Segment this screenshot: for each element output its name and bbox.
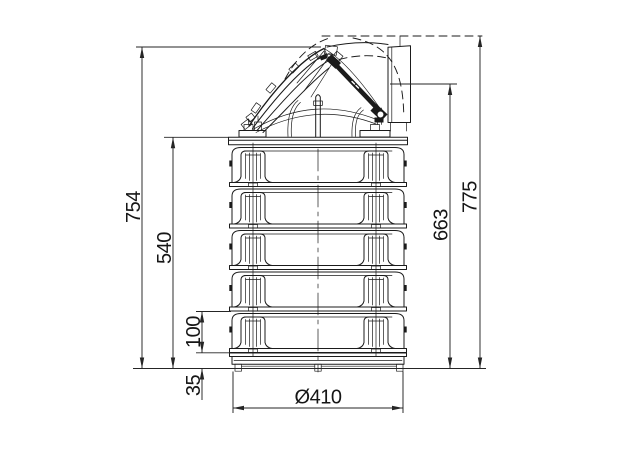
dimension-663-label: 663 [431, 209, 453, 241]
technical-drawing-page: 754 540 100 35 Ø410 [0, 0, 624, 460]
tank-elevation-drawing: 754 540 100 35 Ø410 [0, 0, 624, 460]
dimension-754: 754 [123, 47, 321, 369]
dimension-754-label: 754 [123, 191, 145, 223]
dimension-35: 35 [183, 369, 205, 401]
dimension-410: Ø410 [233, 372, 403, 414]
dimension-100: 100 [183, 312, 231, 353]
dimension-775: 775 [460, 36, 483, 369]
gas-strut [326, 54, 388, 121]
dimension-775-label: 775 [460, 181, 482, 213]
lid-open-position-dashed [285, 36, 482, 116]
dimension-100-label: 100 [183, 316, 205, 348]
tie-rods [253, 143, 376, 356]
dimension-663: 663 [390, 84, 457, 369]
lid-bolt-tabs [251, 51, 318, 113]
dimension-540-label: 540 [154, 232, 176, 264]
lid-assembly [241, 37, 410, 137]
guide-rods [288, 101, 364, 137]
center-mast [314, 95, 323, 137]
dimension-410-label: Ø410 [295, 387, 342, 409]
dimension-35-label: 35 [183, 375, 205, 397]
tank-body [229, 108, 408, 372]
